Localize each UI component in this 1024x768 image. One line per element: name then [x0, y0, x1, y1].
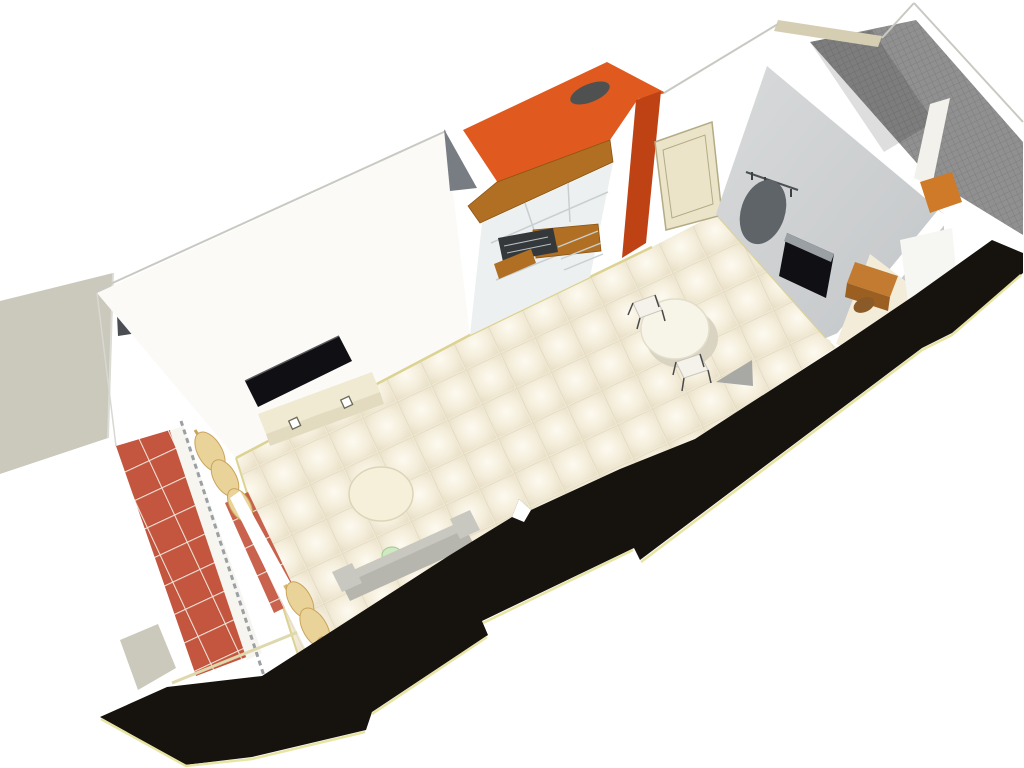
round-rug[interactable] — [349, 467, 413, 521]
floorplan-canvas — [0, 0, 1024, 768]
entry-door-leaf[interactable] — [655, 122, 722, 230]
floorplan-3d-view — [0, 0, 1024, 768]
entry-door[interactable] — [655, 122, 722, 230]
